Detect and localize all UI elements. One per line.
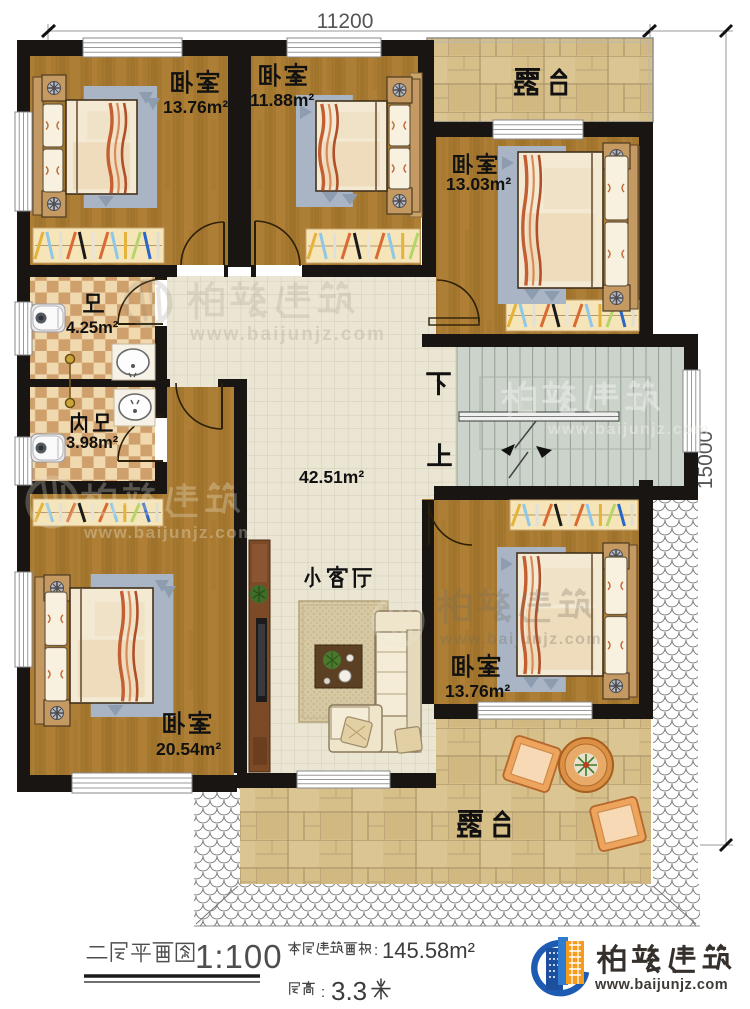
svg-text:42.51m²: 42.51m²: [299, 467, 364, 487]
svg-text::: :: [321, 984, 325, 1001]
svg-text:www.baijunjz.com: www.baijunjz.com: [547, 421, 710, 438]
svg-text:www.baijunjz.com: www.baijunjz.com: [83, 523, 255, 542]
svg-text:145.58m²: 145.58m²: [382, 938, 475, 963]
svg-text:13.76m²: 13.76m²: [445, 681, 510, 701]
svg-text:11.88m²: 11.88m²: [250, 90, 314, 110]
svg-text:3.98m²: 3.98m²: [66, 434, 119, 452]
svg-text:www.baijunjz.com: www.baijunjz.com: [189, 324, 386, 345]
svg-text:20.54m²: 20.54m²: [156, 739, 221, 759]
svg-text:13.03m²: 13.03m²: [446, 174, 511, 194]
svg-text:1:100: 1:100: [195, 938, 283, 975]
svg-text:4.25m²: 4.25m²: [66, 319, 119, 337]
svg-text::: :: [374, 942, 378, 959]
svg-text:13.76m²: 13.76m²: [163, 97, 228, 117]
svg-text:3.3: 3.3: [331, 976, 367, 1006]
svg-text:www.baijunjz.com: www.baijunjz.com: [594, 977, 728, 993]
svg-text:www.baijunjz.com: www.baijunjz.com: [439, 631, 602, 648]
svg-text:11200: 11200: [317, 10, 374, 33]
